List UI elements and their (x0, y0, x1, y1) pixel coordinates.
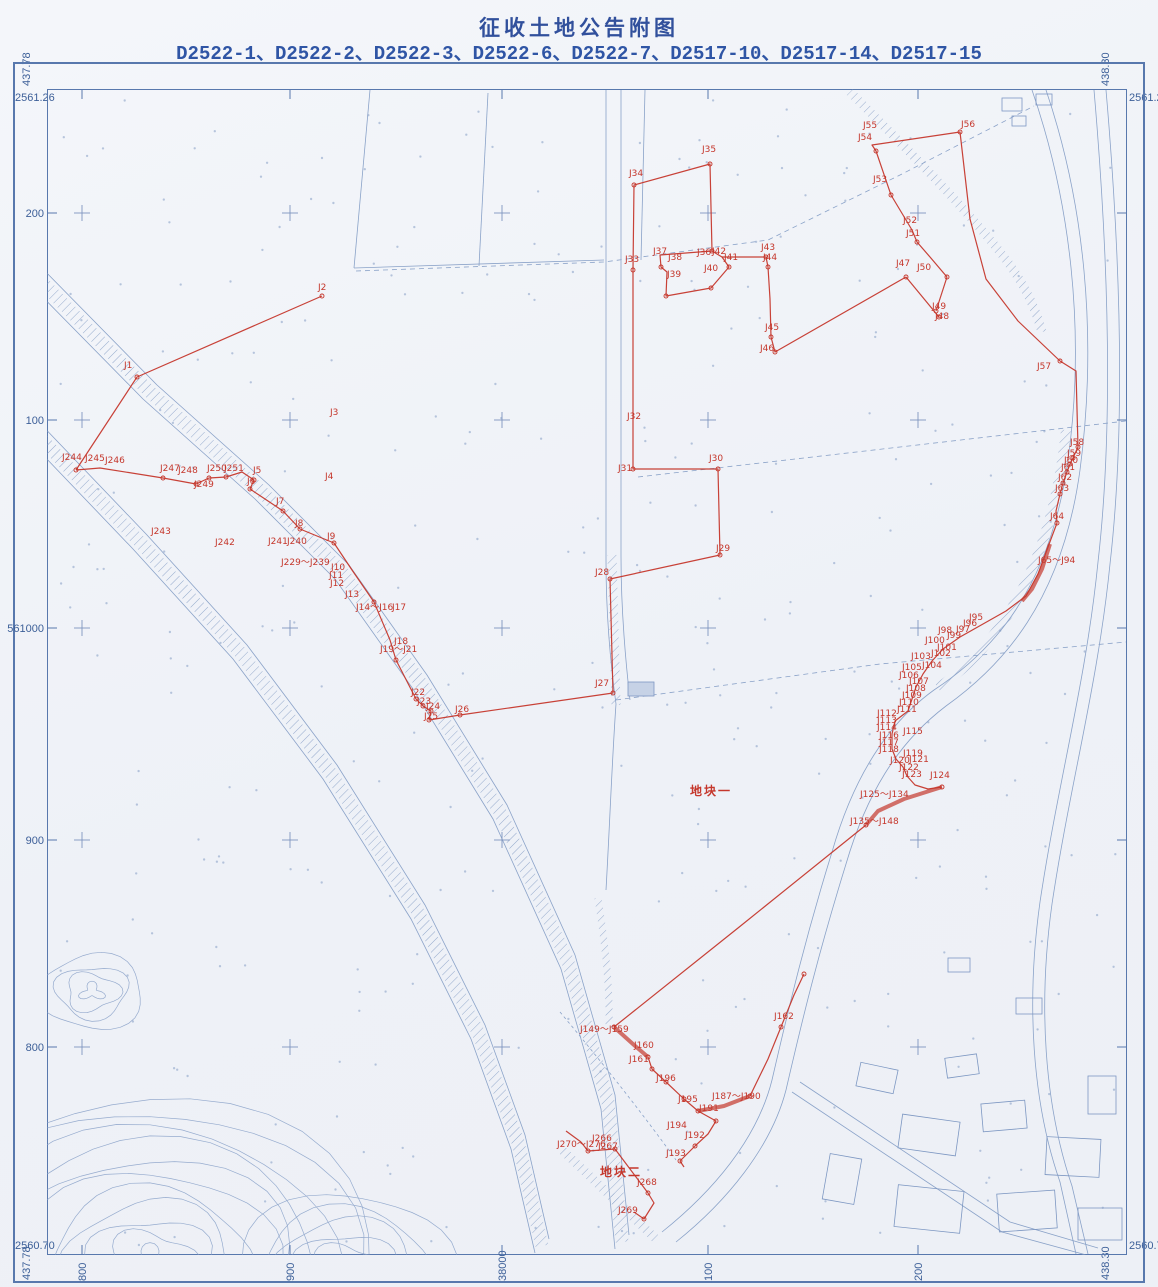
map-speckle (681, 872, 683, 874)
map-speckle (645, 440, 647, 442)
map-speckle (194, 148, 196, 150)
expropriation-boundaries: J2J1J3J244J245J246J247J248J249J250J251J2… (61, 120, 1084, 1221)
map-speckle (685, 702, 687, 704)
map-speckle (390, 1173, 392, 1175)
map-speckle (256, 789, 258, 791)
map-speckle (675, 457, 677, 459)
map-speckle (284, 471, 286, 473)
map-speckle (462, 292, 464, 294)
map-speckle (1011, 472, 1013, 474)
map-speckle (60, 383, 62, 385)
map-speckle (930, 483, 932, 485)
boundary-point-label: J111 (896, 705, 917, 715)
boundary-point-label: J240 (286, 537, 307, 547)
map-speckle (328, 435, 330, 437)
building (822, 1154, 862, 1205)
map-speckle (1046, 385, 1048, 387)
boundary-point-label: J162 (773, 1012, 794, 1022)
map-speckle (869, 733, 871, 735)
map-speckle (731, 328, 733, 330)
map-speckle (699, 139, 701, 141)
map-speckle (482, 758, 484, 760)
map-speckle (870, 763, 872, 765)
boundary-point-label: J193 (665, 1149, 686, 1159)
map-speckle (339, 1061, 341, 1063)
frame-ticks-and-labels: 20010056100090080080090038000100200 (7, 89, 1127, 1281)
boundary-point-label: J45 (764, 323, 779, 333)
boundary-point-label: J149～J159 (579, 1025, 629, 1035)
map-speckle (887, 1026, 889, 1028)
map-speckle (387, 1165, 389, 1167)
boundary-point-label: J161 (628, 1055, 649, 1065)
road-line (356, 106, 1034, 271)
map-speckle (695, 505, 697, 507)
map-speckle (163, 551, 165, 553)
map-speckle (528, 293, 530, 295)
map-speckle (990, 475, 992, 477)
map-speckle (163, 199, 165, 201)
map-speckle (279, 226, 281, 228)
map-speckle (675, 1058, 677, 1060)
boundary-point-label: J51 (905, 229, 920, 239)
map-speckle (180, 284, 182, 286)
map-speckle (737, 174, 739, 176)
boundary-point-label: J249 (193, 480, 214, 490)
map-speckle (266, 162, 268, 164)
map-sheet: 征收土地公告附图 D2522-1、D2522-2、D2522-3、D2522-6… (0, 0, 1158, 1287)
easting-tick-label: 38000 (497, 1250, 509, 1281)
boundary-point-label: J37 (652, 247, 667, 257)
contour-line (35, 952, 140, 1029)
map-speckle (777, 136, 779, 138)
map-speckle (986, 1182, 988, 1184)
map-speckle (957, 829, 959, 831)
map-speckle (404, 294, 406, 296)
map-speckle (187, 1075, 189, 1077)
map-speckle (554, 689, 556, 691)
map-speckle (253, 352, 255, 354)
map-speckle (1024, 381, 1026, 383)
map-speckle (898, 688, 900, 690)
map-speckle (928, 722, 930, 724)
contour-line (69, 972, 123, 1013)
map-speckle (159, 409, 161, 411)
map-svg: 20010056100090080080090038000100200 J2J1… (0, 0, 1158, 1287)
map-speckle (944, 952, 946, 954)
map-speckle (198, 839, 200, 841)
map-speckle (1037, 1029, 1039, 1031)
map-speckle (999, 630, 1001, 632)
boundary-point-label: J52 (902, 216, 917, 226)
map-speckle (879, 517, 881, 519)
boundary-point-label: J12 (329, 579, 344, 589)
map-speckle (321, 882, 323, 884)
map-speckle (724, 1225, 726, 1227)
boundary-point-label: J118 (878, 745, 899, 755)
map-speckle (162, 351, 164, 353)
map-speckle (1006, 795, 1008, 797)
map-speckle (271, 1162, 273, 1164)
map-speckle (86, 155, 88, 157)
building (945, 1054, 979, 1078)
map-speckle (416, 953, 418, 955)
map-speckle (712, 365, 714, 367)
map-speckle (659, 226, 661, 228)
easting-tick-label: 900 (285, 1263, 297, 1281)
map-speckle (375, 1064, 377, 1066)
boundary-point-label: J7 (275, 497, 284, 507)
map-speckle (176, 1069, 178, 1071)
boundary-point-label: J55 (862, 121, 877, 131)
boundary-point-label: J195 (677, 1095, 698, 1105)
map-speckle (357, 969, 359, 971)
map-speckle (672, 795, 674, 797)
map-speckle (414, 226, 416, 228)
map-speckle (790, 601, 792, 603)
map-speckle (1007, 645, 1009, 647)
boundary-point-label: J31 (617, 464, 632, 474)
map-speckle (471, 770, 473, 772)
boundary-point-label: J44 (762, 253, 777, 263)
map-speckle (151, 933, 153, 935)
boundary-point-label: J38 (667, 253, 682, 263)
map-speckle (174, 1236, 176, 1238)
map-speckle (1096, 914, 1098, 916)
map-speckle (644, 427, 646, 429)
map-speckle (633, 1232, 635, 1234)
base-map (0, 90, 1126, 1287)
map-speckle (271, 630, 273, 632)
map-speckle (875, 332, 877, 334)
map-speckle (636, 564, 638, 566)
map-speckle (822, 1218, 824, 1220)
boundary-point-label: J244 (61, 453, 82, 463)
map-speckle (535, 1227, 537, 1229)
building (948, 958, 970, 972)
map-speckle (879, 1232, 881, 1234)
map-speckle (250, 382, 252, 384)
map-speckle (737, 728, 739, 730)
map-speckle (658, 901, 660, 903)
boundary-line (610, 164, 729, 693)
map-speckle (915, 877, 917, 879)
map-speckle (346, 1241, 348, 1243)
building (997, 1190, 1058, 1232)
map-speckle (1113, 1089, 1115, 1091)
map-speckle (592, 662, 594, 664)
easting-tick-label: 200 (913, 1263, 925, 1281)
map-speckle (747, 286, 749, 288)
map-speckle (281, 321, 283, 323)
boundary-point-label: J9 (326, 532, 336, 542)
building (1016, 998, 1042, 1014)
map-speckle (688, 167, 690, 169)
map-speckle (136, 804, 138, 806)
boundary-line (614, 825, 866, 1027)
map-speckle (697, 823, 699, 825)
map-speckle (292, 398, 294, 400)
map-speckle (825, 1201, 827, 1203)
map-speckle (952, 424, 954, 426)
boundary-point-label: J61 (1060, 463, 1075, 473)
map-speckle (859, 280, 861, 282)
building (898, 1114, 960, 1156)
map-speckle (120, 284, 122, 286)
boundary-point-label: J124 (929, 771, 950, 781)
canal-line (606, 704, 616, 890)
map-speckle (60, 970, 62, 972)
boundary-point-label: J4 (324, 472, 334, 482)
map-speckle (373, 263, 375, 265)
map-speckle (986, 888, 988, 890)
map-speckle (385, 991, 387, 993)
bank-hachure (850, 92, 1042, 332)
map-speckle (922, 370, 924, 372)
map-speckle (73, 566, 75, 568)
map-speckle (568, 1018, 570, 1020)
boundary-point-label: J270～J276 (556, 1140, 606, 1150)
map-speckle (572, 271, 574, 273)
boundary-point-label: J43 (760, 243, 775, 253)
map-speckle (639, 570, 641, 572)
map-speckle (70, 293, 72, 295)
map-speckle (364, 168, 366, 170)
boundary-point-label: J25 (423, 712, 438, 722)
map-speckle (984, 740, 986, 742)
boundary-point-label: J14～J16 (355, 603, 393, 613)
map-speckle (639, 142, 641, 144)
bank-hachure (598, 898, 609, 1028)
map-speckle (744, 998, 746, 1000)
boundary-point-label: J39 (666, 270, 681, 280)
map-speckle (755, 241, 757, 243)
map-speckle (81, 319, 83, 321)
map-speckle (963, 225, 965, 227)
boundary-point-label: J160 (633, 1041, 654, 1051)
road-line (800, 1082, 1098, 1248)
map-speckle (420, 156, 422, 158)
map-speckle (745, 886, 747, 888)
map-speckle (621, 1230, 623, 1232)
easting-tick-label: 100 (703, 1263, 715, 1281)
boundary-point-label: J242 (214, 538, 235, 548)
map-speckle (895, 458, 897, 460)
map-speckle (702, 980, 704, 982)
boundary-point-label: J104 (921, 661, 942, 671)
boundary-point-label: J243 (150, 527, 171, 537)
map-speckle (558, 254, 560, 256)
boundary-point-label: J46 (759, 344, 774, 354)
map-speckle (833, 562, 835, 564)
map-speckle (713, 669, 715, 671)
map-speckle (1030, 672, 1032, 674)
map-speckle (1107, 260, 1109, 262)
map-speckle (891, 681, 893, 683)
map-speckle (788, 933, 790, 935)
boundary-point-label: J3 (329, 408, 338, 418)
map-speckle (870, 595, 872, 597)
map-speckle (621, 765, 623, 767)
map-speckle (540, 438, 542, 440)
boundary-point-label: J30 (708, 454, 723, 464)
map-speckle (203, 859, 205, 861)
river-line (1033, 90, 1108, 1254)
map-speckle (1064, 693, 1066, 695)
map-speckle (359, 991, 361, 993)
building (1002, 98, 1022, 111)
map-speckle (60, 583, 62, 585)
boundary-point-label: J2 (317, 283, 326, 293)
boundary-point-label: J247 (159, 464, 180, 474)
boundary-point-label: J1 (123, 361, 132, 371)
canal-band-edge (21, 432, 535, 1253)
parcel-label: 地块二 (600, 1164, 642, 1179)
boundary-point-label: J229～J239 (280, 558, 330, 568)
map-speckle (756, 745, 758, 747)
map-speckle (789, 613, 791, 615)
map-speckle (935, 430, 937, 432)
map-speckle (719, 598, 721, 600)
boundary-point-label: J17 (391, 603, 406, 613)
map-speckle (1084, 651, 1086, 653)
map-speckle (1018, 275, 1020, 277)
map-speckle (448, 684, 450, 686)
boundary-point-label: J28 (594, 568, 609, 578)
map-speckle (197, 359, 199, 361)
parcel-label: 地块一 (690, 783, 732, 798)
northing-tick-label: 561000 (7, 623, 44, 635)
building (1045, 1137, 1101, 1178)
boundary-point-label: J115 (902, 727, 923, 737)
boundary-point-label: J269 (617, 1206, 638, 1216)
map-speckle (435, 416, 437, 418)
map-speckle (244, 965, 246, 967)
map-speckle (88, 544, 90, 546)
map-speckle (666, 704, 668, 706)
map-speckle (333, 202, 335, 204)
map-speckle (1045, 846, 1047, 848)
map-speckle (735, 1006, 737, 1008)
map-speckle (805, 195, 807, 197)
map-speckle (218, 856, 220, 858)
boundary-point-label: J36 (696, 248, 711, 258)
map-speckle (216, 946, 218, 948)
map-speckle (640, 280, 642, 282)
map-speckle (97, 655, 99, 657)
map-speckle (216, 861, 218, 863)
map-speckle (679, 158, 681, 160)
map-speckle (138, 1244, 140, 1246)
boundary-point-label: J42 (711, 247, 726, 257)
boundary-point-label: J27 (594, 679, 609, 689)
map-speckle (232, 353, 234, 355)
boundary-point-label: J29 (715, 544, 730, 554)
map-speckle (353, 761, 355, 763)
map-speckle (394, 450, 396, 452)
boundary-point-label: J62 (1057, 473, 1072, 483)
map-speckle (964, 720, 966, 722)
map-speckle (262, 249, 264, 251)
building (981, 1100, 1027, 1132)
map-speckle (1071, 854, 1073, 856)
map-speckle (537, 191, 539, 193)
map-speckle (598, 1226, 600, 1228)
map-speckle (310, 198, 312, 200)
easting-tick-label: 800 (77, 1263, 89, 1281)
map-speckle (691, 443, 693, 445)
contour-line (53, 969, 129, 1022)
building (628, 682, 654, 696)
map-speckle (776, 692, 778, 694)
building (894, 1185, 964, 1234)
map-speckle (412, 983, 414, 985)
map-speckle (282, 585, 284, 587)
map-speckle (223, 862, 225, 864)
map-speckle (98, 488, 100, 490)
road-line (616, 642, 1126, 700)
boundary-point-label: J194 (666, 1121, 687, 1131)
map-speckle (69, 607, 71, 609)
boundary-point-label: J248 (177, 466, 198, 476)
map-speckle (127, 975, 129, 977)
field-line (354, 90, 370, 268)
map-speckle (869, 413, 871, 415)
map-speckle (846, 167, 848, 169)
map-speckle (492, 890, 494, 892)
map-speckle (1115, 853, 1117, 855)
map-speckle (542, 141, 544, 143)
map-speckle (647, 1169, 649, 1171)
map-speckle (1038, 516, 1040, 518)
map-speckle (170, 658, 172, 660)
boundary-point-label: J48 (934, 312, 949, 322)
map-speckle (958, 1066, 960, 1068)
boundary-point-label: J54 (857, 133, 872, 143)
map-speckle (1036, 441, 1038, 443)
map-speckle (1004, 524, 1006, 526)
boundary-point-label: J26 (454, 705, 469, 715)
map-speckle (1010, 1103, 1012, 1105)
map-speckle (431, 1240, 433, 1242)
northing-tick-label: 800 (26, 1042, 44, 1054)
map-speckle (307, 869, 309, 871)
map-speckle (988, 1177, 990, 1179)
map-speckle (568, 551, 570, 553)
map-speckle (102, 148, 104, 150)
map-speckle (413, 732, 415, 734)
map-speckle (450, 806, 452, 808)
map-speckle (733, 738, 735, 740)
map-speckle (973, 1038, 975, 1040)
map-speckle (698, 808, 700, 810)
boundary-point-label: J245 (84, 454, 105, 464)
map-speckle (706, 161, 708, 163)
boundary-point-label: J65～J94 (1037, 556, 1075, 566)
map-speckle (707, 1030, 709, 1032)
map-speckle (113, 492, 115, 494)
field-line (479, 93, 488, 266)
map-speckle (817, 947, 819, 949)
map-speckle (771, 511, 773, 513)
building (856, 1062, 898, 1093)
map-speckle (667, 576, 669, 578)
map-speckle (464, 871, 466, 873)
map-speckle (1044, 431, 1046, 433)
map-speckle (716, 890, 718, 892)
map-speckle (534, 299, 536, 301)
map-speckle (230, 281, 232, 283)
map-speckle (478, 111, 480, 113)
